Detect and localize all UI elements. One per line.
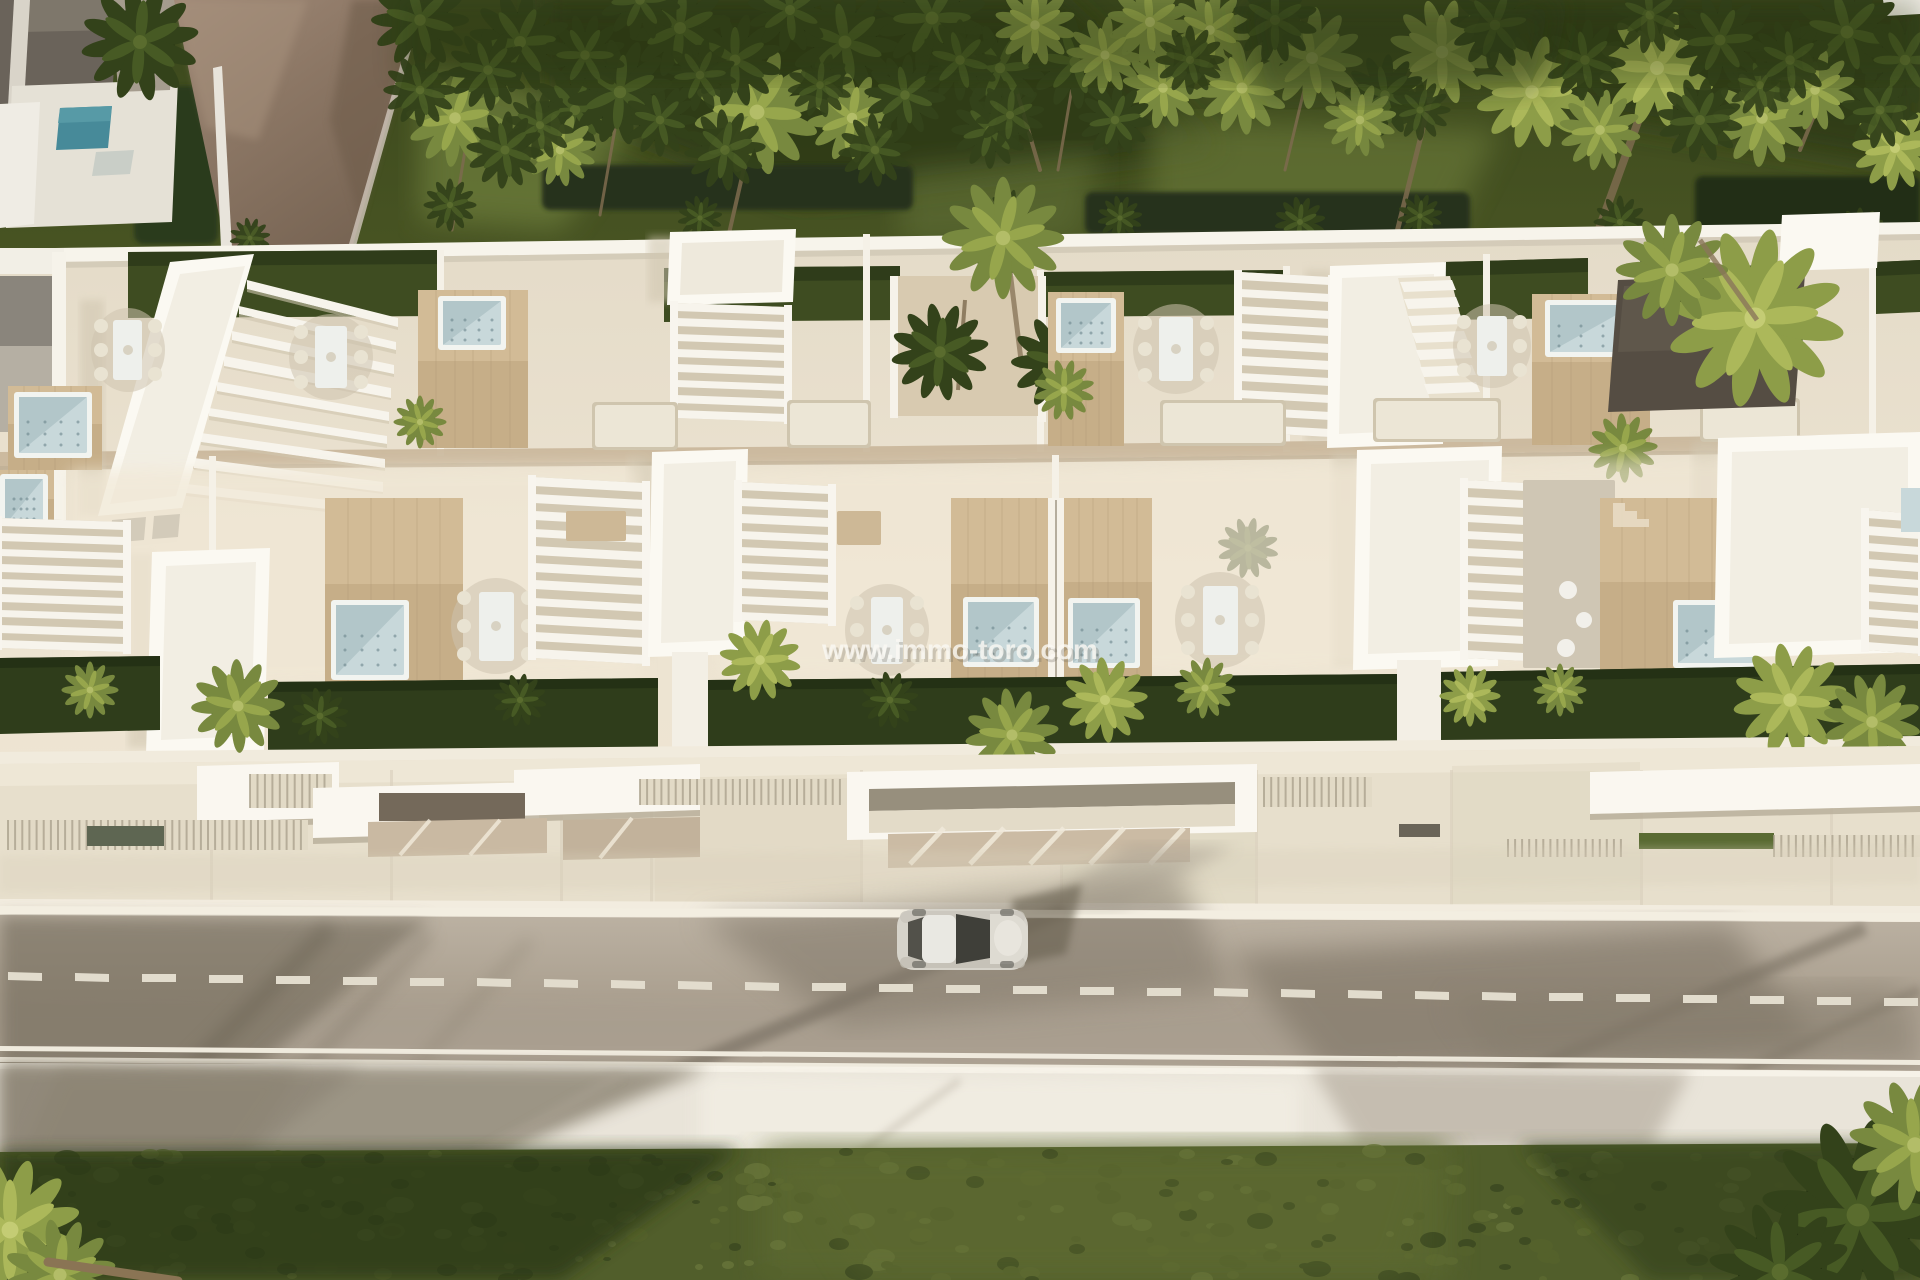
svg-text:www.immo-toro.com: www.immo-toro.com (821, 634, 1098, 665)
